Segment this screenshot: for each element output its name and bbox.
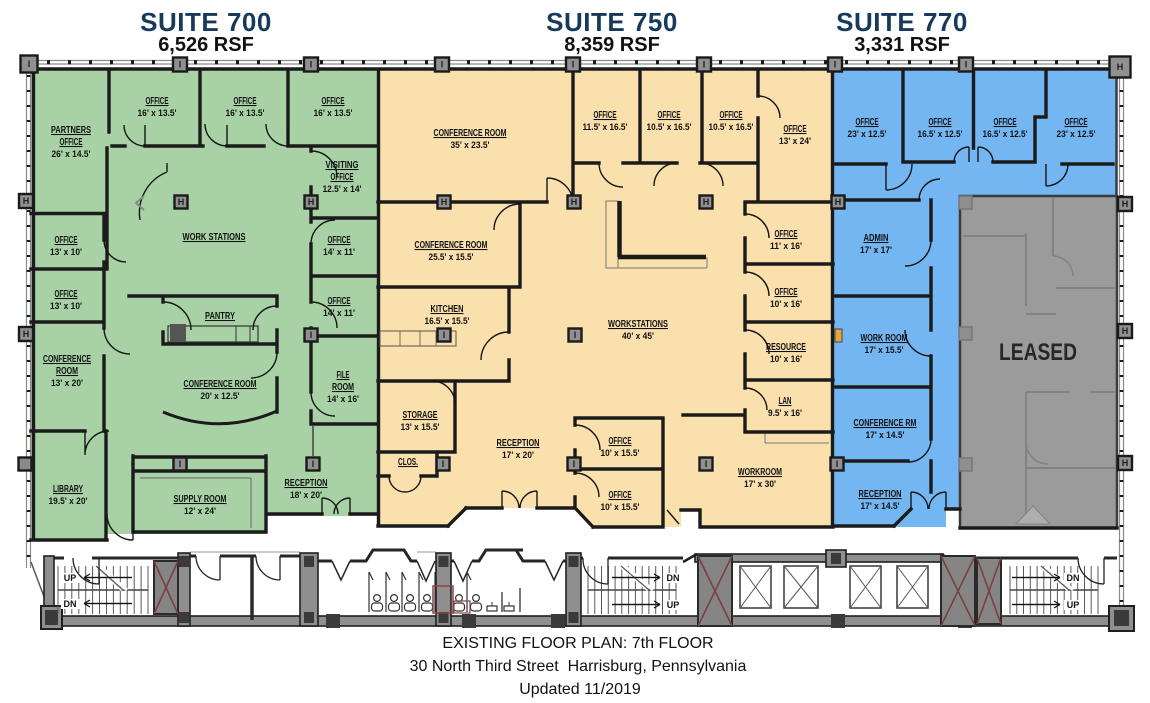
svg-text:14' x 11': 14' x 11'	[323, 247, 355, 258]
svg-text:LAN: LAN	[779, 395, 792, 407]
svg-text:RECEPTION: RECEPTION	[285, 477, 328, 489]
svg-text:PARTNERS: PARTNERS	[51, 124, 91, 136]
svg-text:H: H	[1122, 458, 1129, 468]
svg-text:17' x 14.5': 17' x 14.5'	[866, 430, 905, 441]
svg-text:ROOM: ROOM	[332, 381, 354, 393]
svg-text:I: I	[836, 459, 839, 469]
svg-text:10' x 16': 10' x 16'	[770, 354, 802, 365]
svg-text:OFFICE: OFFICE	[55, 288, 78, 300]
svg-text:OFFICE: OFFICE	[60, 136, 83, 148]
svg-text:H: H	[1122, 199, 1129, 209]
svg-text:SUITE 770: SUITE 770	[836, 7, 968, 37]
svg-text:I: I	[574, 330, 577, 340]
svg-text:14' x 16': 14' x 16'	[327, 394, 359, 405]
svg-text:20' x 12.5': 20' x 12.5'	[201, 391, 240, 402]
svg-text:26' x 14.5': 26' x 14.5'	[52, 149, 91, 160]
svg-text:OFFICE: OFFICE	[328, 234, 351, 246]
svg-text:I: I	[442, 459, 445, 469]
svg-text:OFFICE: OFFICE	[784, 123, 807, 135]
svg-text:OFFICE: OFFICE	[994, 116, 1017, 128]
svg-text:H: H	[571, 197, 578, 207]
svg-text:OFFICE: OFFICE	[856, 116, 879, 128]
svg-text:17' x 20': 17' x 20'	[502, 450, 534, 461]
svg-text:35' x 23.5': 35' x 23.5'	[451, 140, 490, 151]
svg-text:16.5' x 15.5': 16.5' x 15.5'	[425, 316, 470, 327]
svg-text:13' x 10': 13' x 10'	[50, 301, 82, 312]
svg-text:CONFERENCE ROOM: CONFERENCE ROOM	[415, 239, 488, 251]
svg-text:I: I	[179, 459, 182, 469]
svg-text:LIBRARY: LIBRARY	[53, 483, 83, 495]
svg-text:SUPPLY ROOM: SUPPLY ROOM	[174, 493, 227, 505]
svg-text:I: I	[310, 330, 313, 340]
svg-text:I: I	[312, 459, 315, 469]
svg-text:16.5' x 12.5': 16.5' x 12.5'	[983, 129, 1028, 140]
svg-text:13' x 15.5': 13' x 15.5'	[401, 422, 440, 433]
svg-text:UP: UP	[667, 600, 680, 610]
svg-text:DN: DN	[1067, 573, 1080, 583]
svg-text:8,359 RSF: 8,359 RSF	[564, 34, 660, 56]
svg-text:40' x 45': 40' x 45'	[622, 331, 654, 342]
svg-text:3,331 RSF: 3,331 RSF	[854, 34, 950, 56]
svg-text:PANTRY: PANTRY	[205, 310, 235, 322]
svg-text:OFFICE: OFFICE	[609, 435, 632, 447]
svg-text:OFFICE: OFFICE	[775, 228, 798, 240]
svg-text:OFFICE: OFFICE	[234, 95, 257, 107]
svg-text:OFFICE: OFFICE	[658, 109, 681, 121]
svg-text:EXISTING FLOOR PLAN: 7th FLOOR: EXISTING FLOOR PLAN: 7th FLOOR	[442, 635, 713, 652]
svg-text:UP: UP	[1067, 600, 1080, 610]
svg-text:11' x 16': 11' x 16'	[770, 241, 802, 252]
svg-text:RECEPTION: RECEPTION	[497, 437, 540, 449]
svg-text:I: I	[834, 60, 837, 70]
svg-text:OFFICE: OFFICE	[322, 95, 345, 107]
svg-text:OFFICE: OFFICE	[331, 171, 354, 183]
svg-text:H: H	[835, 197, 842, 207]
svg-text:CONFERENCE: CONFERENCE	[43, 353, 91, 365]
svg-text:WORK STATIONS: WORK STATIONS	[183, 231, 246, 243]
svg-text:16' x 13.5': 16' x 13.5'	[314, 108, 353, 119]
svg-text:12' x 24': 12' x 24'	[184, 506, 216, 517]
svg-text:9.5' x 16': 9.5' x 16'	[768, 408, 802, 419]
svg-text:OFFICE: OFFICE	[1065, 116, 1088, 128]
svg-text:23' x 12.5': 23' x 12.5'	[1057, 129, 1096, 140]
svg-text:RESOURCE: RESOURCE	[766, 341, 806, 353]
svg-text:KITCHEN: KITCHEN	[431, 303, 464, 315]
svg-text:25.5' x 15.5': 25.5' x 15.5'	[429, 252, 474, 263]
svg-text:I: I	[310, 60, 313, 70]
svg-text:DN: DN	[667, 573, 680, 583]
svg-text:30 North Third Street Harrisb: 30 North Third Street Harrisburg, Pennsy…	[410, 658, 747, 675]
svg-text:SUITE 700: SUITE 700	[140, 7, 272, 37]
svg-text:FILE: FILE	[337, 369, 350, 381]
svg-text:WORKROOM: WORKROOM	[738, 466, 782, 478]
svg-text:10' x 15.5': 10' x 15.5'	[601, 448, 640, 459]
svg-text:VISITING: VISITING	[326, 159, 359, 171]
svg-text:16.5' x 12.5': 16.5' x 12.5'	[918, 129, 963, 140]
svg-text:I: I	[441, 60, 444, 70]
svg-text:I: I	[705, 459, 708, 469]
svg-text:RECEPTION: RECEPTION	[859, 488, 902, 500]
svg-text:CLOS.: CLOS.	[398, 456, 418, 468]
svg-text:UP: UP	[64, 573, 77, 583]
svg-text:Updated 11/2019: Updated 11/2019	[519, 681, 641, 698]
svg-text:13' x 10': 13' x 10'	[50, 247, 82, 258]
svg-text:13' x 24': 13' x 24'	[779, 136, 811, 147]
svg-text:H: H	[23, 329, 30, 339]
svg-text:17' x 14.5': 17' x 14.5'	[861, 501, 900, 512]
svg-text:H: H	[441, 197, 448, 207]
svg-text:I: I	[572, 60, 575, 70]
svg-text:10' x 15.5': 10' x 15.5'	[601, 502, 640, 513]
svg-text:DN: DN	[64, 599, 77, 609]
svg-text:16' x 13.5': 16' x 13.5'	[138, 108, 177, 119]
svg-text:H: H	[308, 197, 315, 207]
svg-text:LEASED: LEASED	[999, 339, 1077, 366]
svg-text:I: I	[703, 60, 706, 70]
svg-text:I: I	[443, 330, 446, 340]
svg-text:17' x 15.5': 17' x 15.5'	[865, 345, 904, 356]
svg-text:I: I	[573, 459, 576, 469]
svg-text:I: I	[965, 60, 968, 70]
svg-text:I: I	[28, 59, 31, 69]
svg-text:H: H	[1122, 326, 1129, 336]
svg-text:OFFICE: OFFICE	[328, 295, 351, 307]
svg-text:I: I	[179, 60, 182, 70]
svg-text:OFFICE: OFFICE	[775, 286, 798, 298]
svg-text:ROOM: ROOM	[56, 365, 78, 377]
svg-text:CONFERENCE ROOM: CONFERENCE ROOM	[184, 378, 257, 390]
svg-text:12.5' x 14': 12.5' x 14'	[323, 184, 362, 195]
svg-text:WORK ROOM: WORK ROOM	[861, 332, 908, 344]
svg-text:19.5' x 20': 19.5' x 20'	[49, 496, 88, 507]
svg-text:17' x 30': 17' x 30'	[744, 479, 776, 490]
svg-text:OFFICE: OFFICE	[55, 234, 78, 246]
svg-text:14' x 11': 14' x 11'	[323, 308, 355, 319]
svg-text:OFFICE: OFFICE	[594, 109, 617, 121]
svg-text:WORKSTATIONS: WORKSTATIONS	[608, 318, 668, 330]
svg-text:OFFICE: OFFICE	[146, 95, 169, 107]
svg-text:OFFICE: OFFICE	[929, 116, 952, 128]
svg-text:11.5' x 16.5': 11.5' x 16.5'	[583, 122, 628, 133]
svg-text:H: H	[178, 197, 185, 207]
svg-text:10' x 16': 10' x 16'	[770, 299, 802, 310]
svg-text:10.5' x 16.5': 10.5' x 16.5'	[647, 122, 692, 133]
svg-text:18' x 20': 18' x 20'	[290, 490, 322, 501]
svg-text:6,526 RSF: 6,526 RSF	[158, 34, 254, 56]
svg-text:STORAGE: STORAGE	[403, 409, 438, 421]
svg-text:H: H	[23, 196, 30, 206]
svg-text:CONFERENCE RM: CONFERENCE RM	[854, 417, 917, 429]
svg-text:H: H	[703, 197, 710, 207]
svg-text:H: H	[1117, 62, 1124, 72]
svg-text:17' x 17': 17' x 17'	[860, 245, 892, 256]
svg-text:13' x 20': 13' x 20'	[51, 378, 83, 389]
svg-text:OFFICE: OFFICE	[720, 109, 743, 121]
svg-text:16' x 13.5': 16' x 13.5'	[226, 108, 265, 119]
svg-text:23' x 12.5': 23' x 12.5'	[848, 129, 887, 140]
svg-text:OFFICE: OFFICE	[609, 489, 632, 501]
svg-text:SUITE 750: SUITE 750	[546, 7, 678, 37]
svg-text:ADMIN: ADMIN	[864, 232, 889, 244]
svg-text:CONFERENCE ROOM: CONFERENCE ROOM	[434, 127, 507, 139]
svg-text:10.5' x 16.5': 10.5' x 16.5'	[709, 122, 754, 133]
